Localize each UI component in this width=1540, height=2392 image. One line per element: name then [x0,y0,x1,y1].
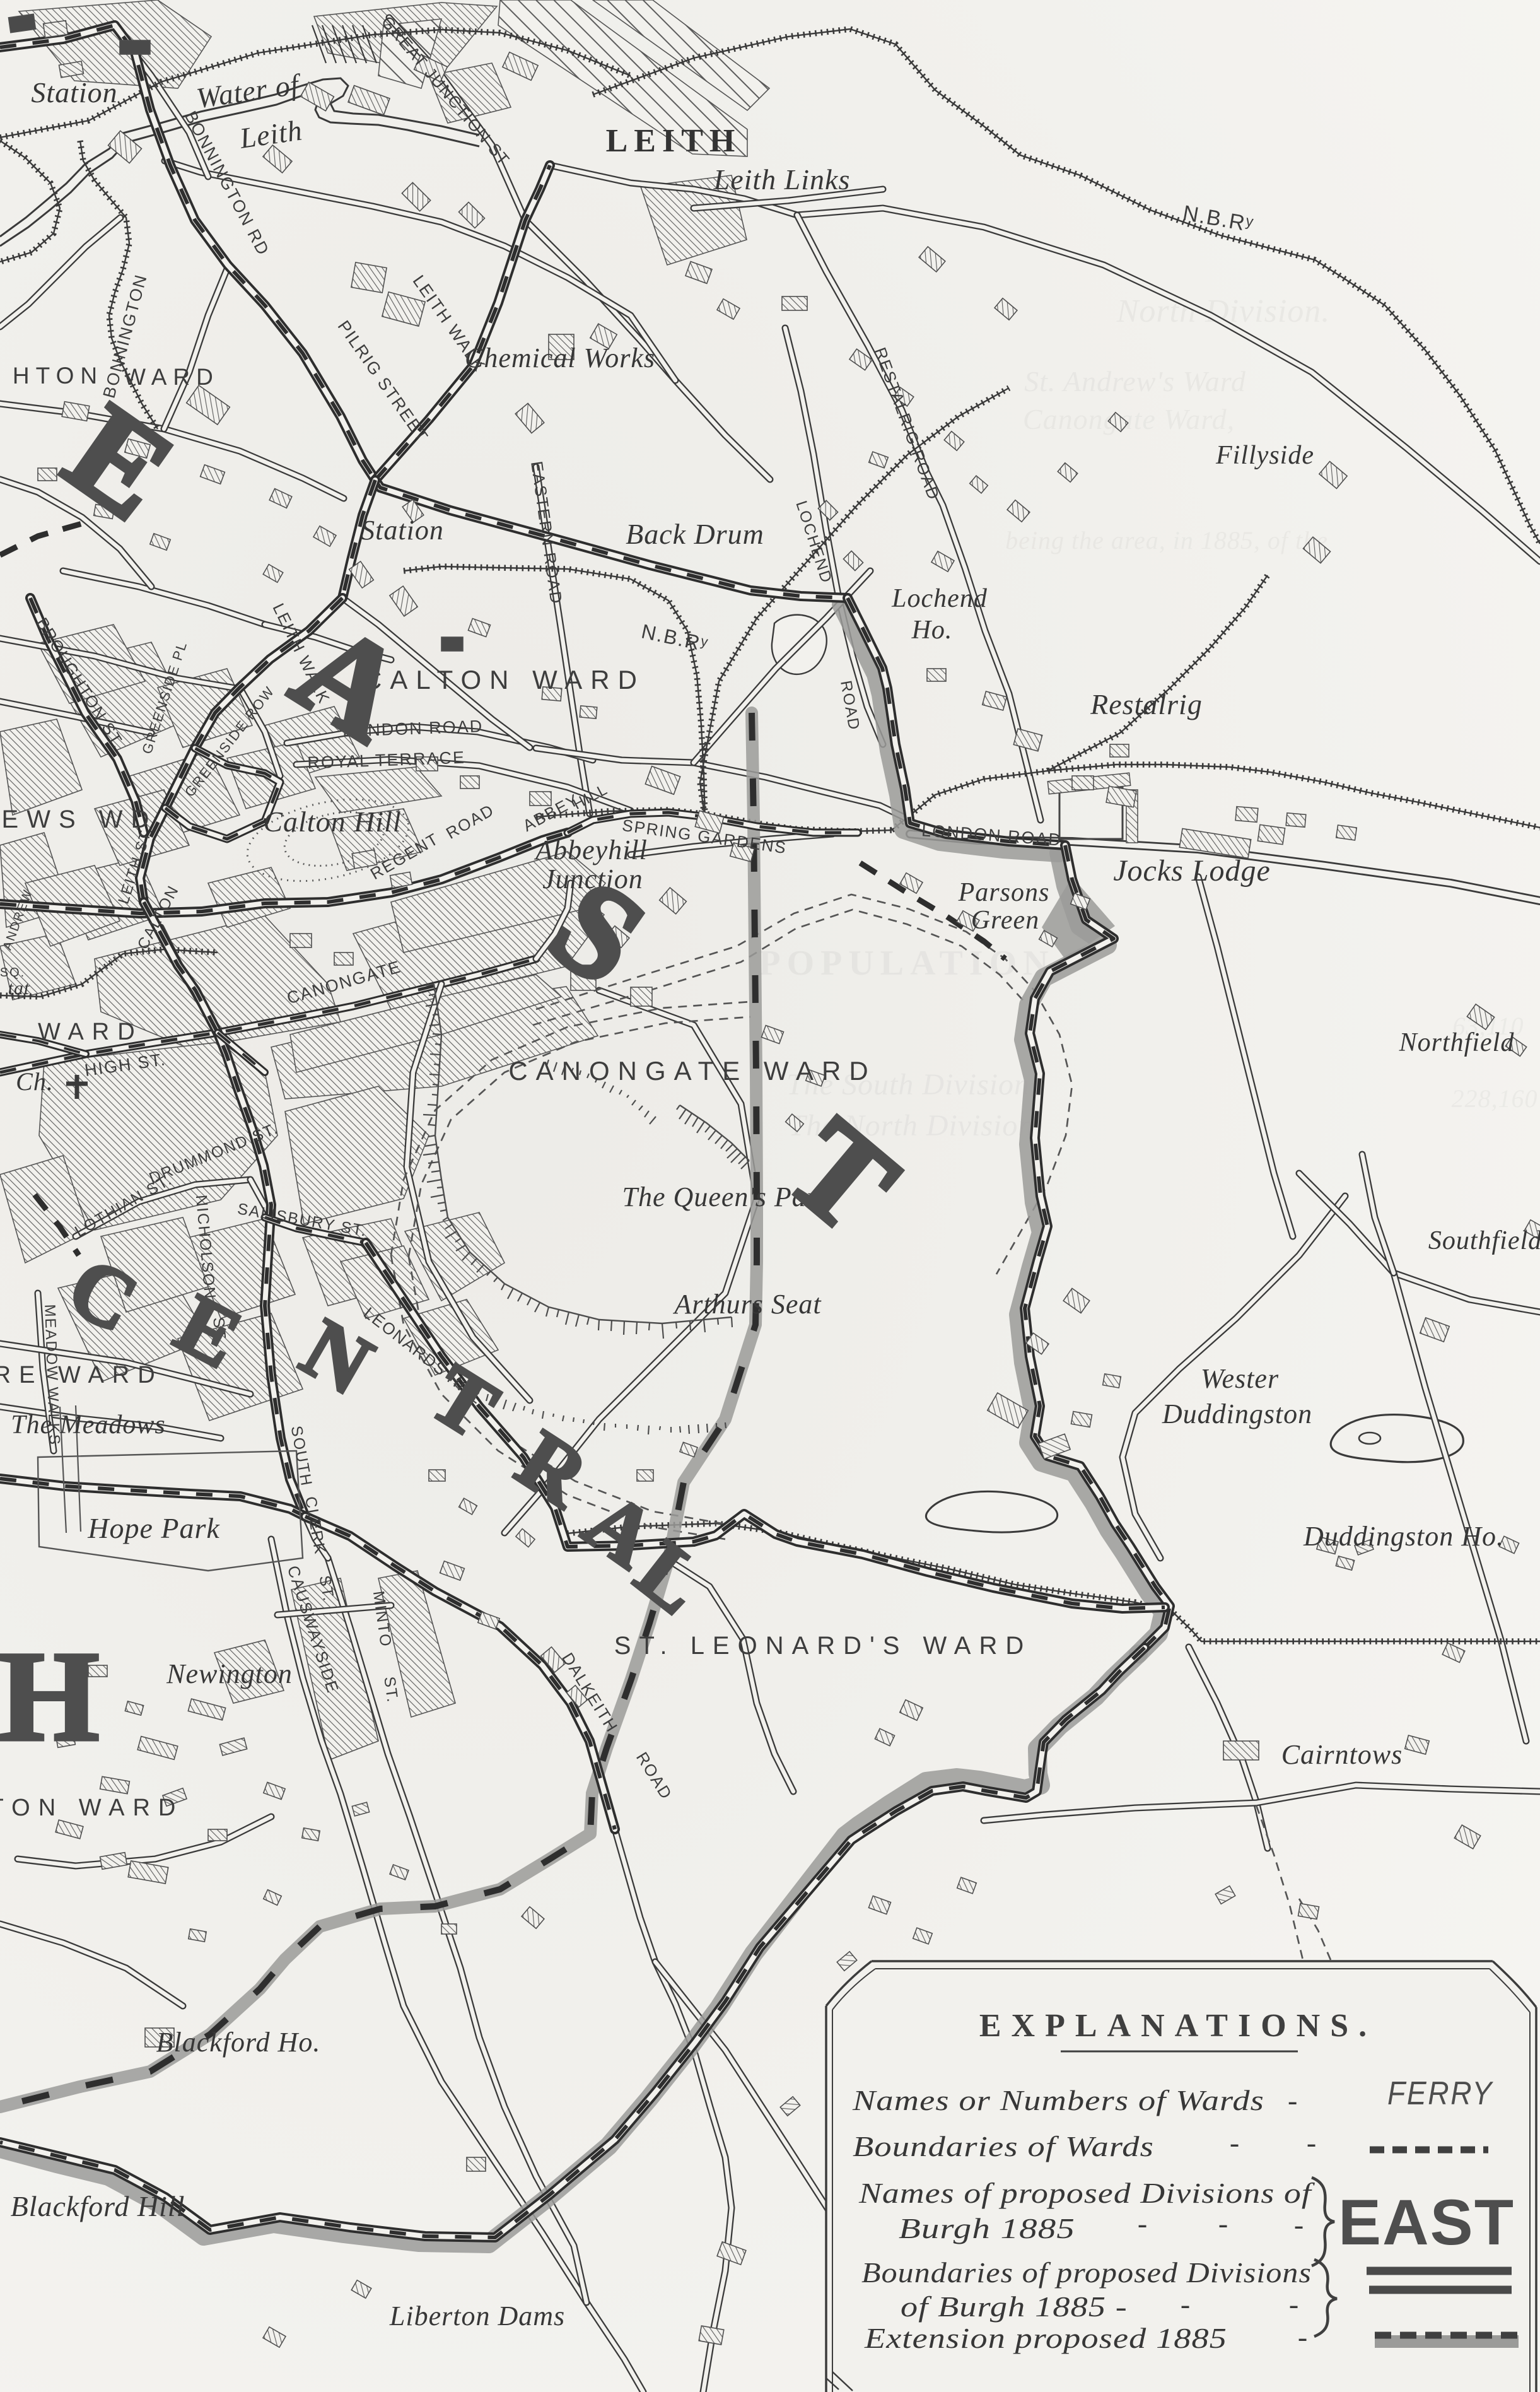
svg-text:Southfield: Southfield [1428,1226,1540,1255]
svg-text:Lochend: Lochend [891,584,988,613]
svg-text:228,160: 228,160 [1452,1084,1538,1113]
svg-text:Northfield: Northfield [1399,1028,1515,1057]
svg-text:Restalrig: Restalrig [1090,688,1203,720]
svg-text:The Meadows: The Meadows [11,1410,166,1439]
svg-text:ST.: ST. [380,1675,402,1704]
svg-text:-: - [1307,2126,1317,2159]
svg-text:-: - [1181,2288,1191,2320]
svg-text:-: - [1298,2321,1308,2353]
svg-text:Duddingston Ho.: Duddingston Ho. [1303,1521,1504,1552]
svg-text:Back Drum: Back Drum [626,518,764,550]
svg-text:Abbeyhill: Abbeyhill [534,835,648,865]
svg-text:Blackford Hill: Blackford Hill [11,2190,185,2222]
svg-text:Boundaries of Wards: Boundaries of Wards [853,2130,1154,2162]
svg-text:Leith Links: Leith Links [713,163,851,196]
svg-text:ST. LEONARD'S WARD: ST. LEONARD'S WARD [614,1632,1032,1660]
svg-text:-: - [1294,2208,1304,2241]
svg-text:-: - [1218,2207,1228,2239]
svg-text:Extension proposed 1885: Extension proposed 1885 [864,2322,1227,2354]
svg-text:Parsons: Parsons [958,878,1050,907]
svg-text:Hope Park: Hope Park [87,1512,220,1544]
svg-text:Ho.: Ho. [911,616,953,645]
svg-text:ARE WARD: ARE WARD [0,1362,163,1388]
svg-text:Liberton Dams: Liberton Dams [389,2301,565,2331]
svg-text:Green: Green [971,906,1039,935]
svg-text:Burgh 1885: Burgh 1885 [899,2212,1075,2244]
svg-text:Cairntows: Cairntows [1281,1739,1403,1770]
svg-text:FERRY: FERRY [1387,2075,1493,2112]
svg-text:being the area, in 1885, of th: being the area, in 1885, of the [1005,526,1328,554]
svg-text:Arthurs Seat: Arthurs Seat [672,1289,822,1320]
svg-text:CANONGATE WARD: CANONGATE WARD [508,1056,876,1086]
svg-text:REWS WD: REWS WD [0,806,157,833]
svg-text:H: H [0,1625,100,1768]
svg-text:EXPLANATIONS.: EXPLANATIONS. [979,2008,1377,2044]
svg-text:tat: tat [8,978,30,999]
svg-text:of Burgh 1885 -: of Burgh 1885 - [901,2290,1128,2323]
svg-text:Jocks Lodge: Jocks Lodge [1113,854,1271,888]
svg-text:Newington: Newington [166,1658,293,1689]
svg-text:TON WARD: TON WARD [0,1795,184,1821]
svg-text:HTON: HTON [13,363,103,389]
svg-text:-: - [1138,2207,1148,2239]
svg-text:Wester: Wester [1201,1363,1279,1394]
svg-text:-: - [1288,2084,1298,2116]
svg-text:St. Andrew's Ward: St. Andrew's Ward [1024,365,1246,397]
svg-text:-: - [1230,2126,1240,2159]
svg-text:Duddingston: Duddingston [1162,1398,1312,1429]
svg-text:LEITH: LEITH [606,123,742,159]
svg-text:POPULATION.: POPULATION. [759,944,1070,983]
svg-text:EAST: EAST [1338,2186,1516,2258]
svg-text:Station: Station [361,515,444,546]
svg-text:Calton Hill: Calton Hill [263,806,401,838]
svg-text:Canongate Ward,: Canongate Ward, [1023,403,1235,435]
svg-text:Ch.: Ch. [16,1067,54,1096]
svg-text:Fillyside: Fillyside [1215,441,1314,470]
svg-text:Station: Station [31,76,117,108]
svg-text:WARD: WARD [38,1019,143,1045]
svg-text:Names of proposed Divisions of: Names of proposed Divisions of [858,2177,1315,2209]
svg-text:Chemical Works: Chemical Works [465,343,655,373]
svg-text:-: - [1289,2288,1299,2320]
svg-text:Blackford Ho.: Blackford Ho. [156,2027,321,2058]
svg-text:Boundaries of proposed Divisio: Boundaries of proposed Divisions [861,2256,1312,2289]
svg-text:Names or Numbers of Wards: Names or Numbers of Wards [852,2084,1264,2116]
